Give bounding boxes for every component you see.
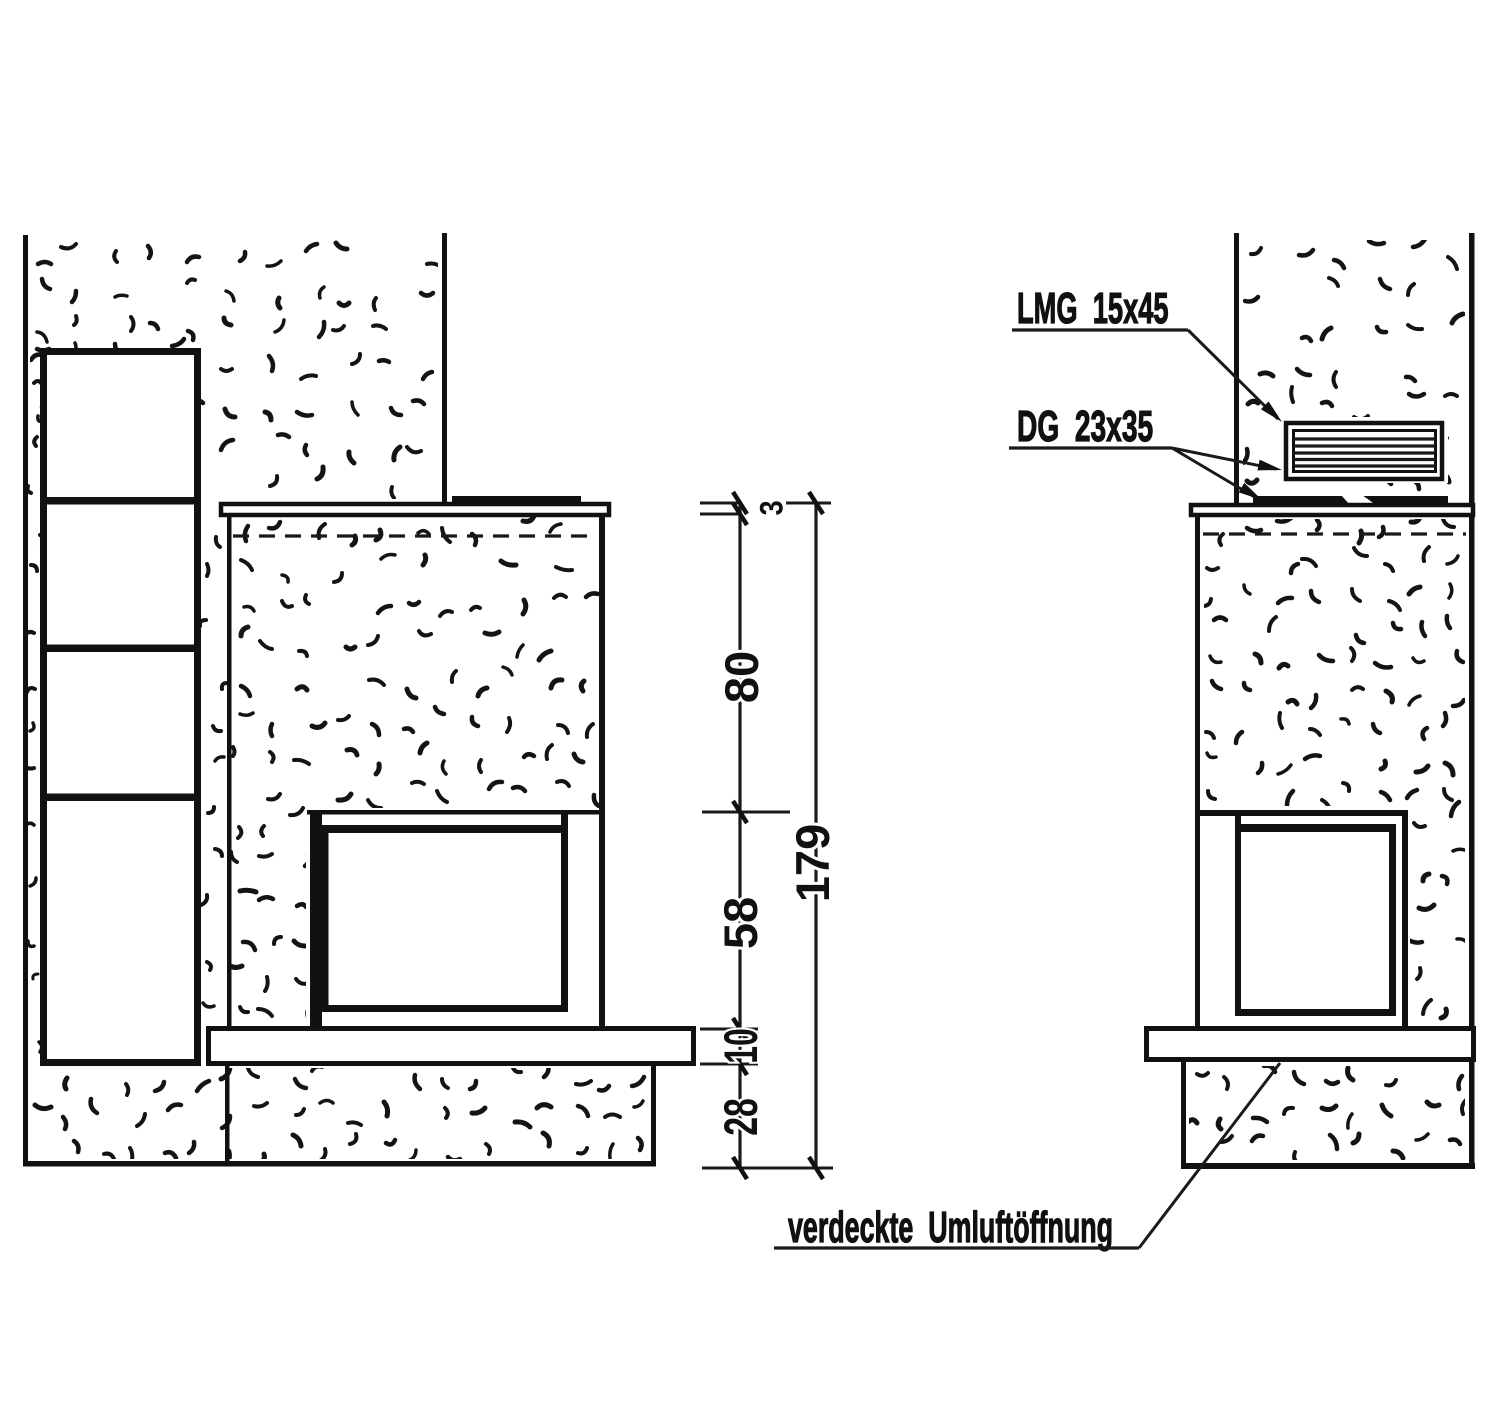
- svg-text:LMG 15x45: LMG 15x45: [1017, 283, 1169, 332]
- svg-text:58: 58: [714, 897, 767, 949]
- svg-text:179: 179: [786, 824, 839, 902]
- svg-text:3: 3: [755, 500, 791, 515]
- svg-text:28: 28: [714, 1098, 767, 1136]
- svg-text:80: 80: [715, 651, 768, 703]
- svg-text:10: 10: [715, 1028, 768, 1064]
- svg-text:verdeckte Umluftöffnung: verdeckte Umluftöffnung: [788, 1202, 1113, 1252]
- svg-text:DG 23x35: DG 23x35: [1017, 402, 1153, 451]
